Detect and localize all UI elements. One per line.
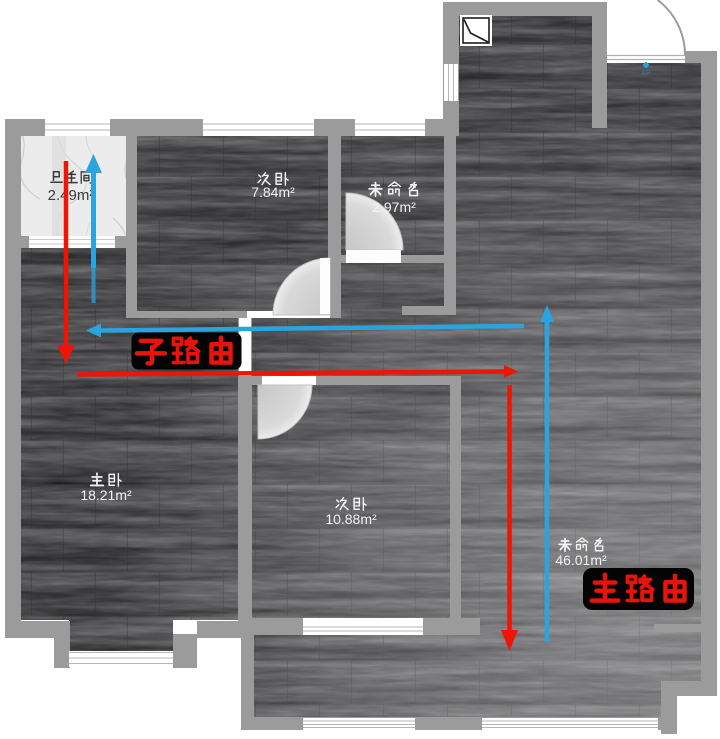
svg-text:18.21m²: 18.21m² [80,487,132,503]
svg-text:2.97m²: 2.97m² [372,199,416,215]
svg-text:AP: AP [641,68,651,77]
svg-text:46.01m²: 46.01m² [555,552,607,568]
svg-text:7.84m²: 7.84m² [251,184,295,200]
svg-text:10.88m²: 10.88m² [325,511,377,527]
svg-text:2.49m²: 2.49m² [48,187,95,204]
